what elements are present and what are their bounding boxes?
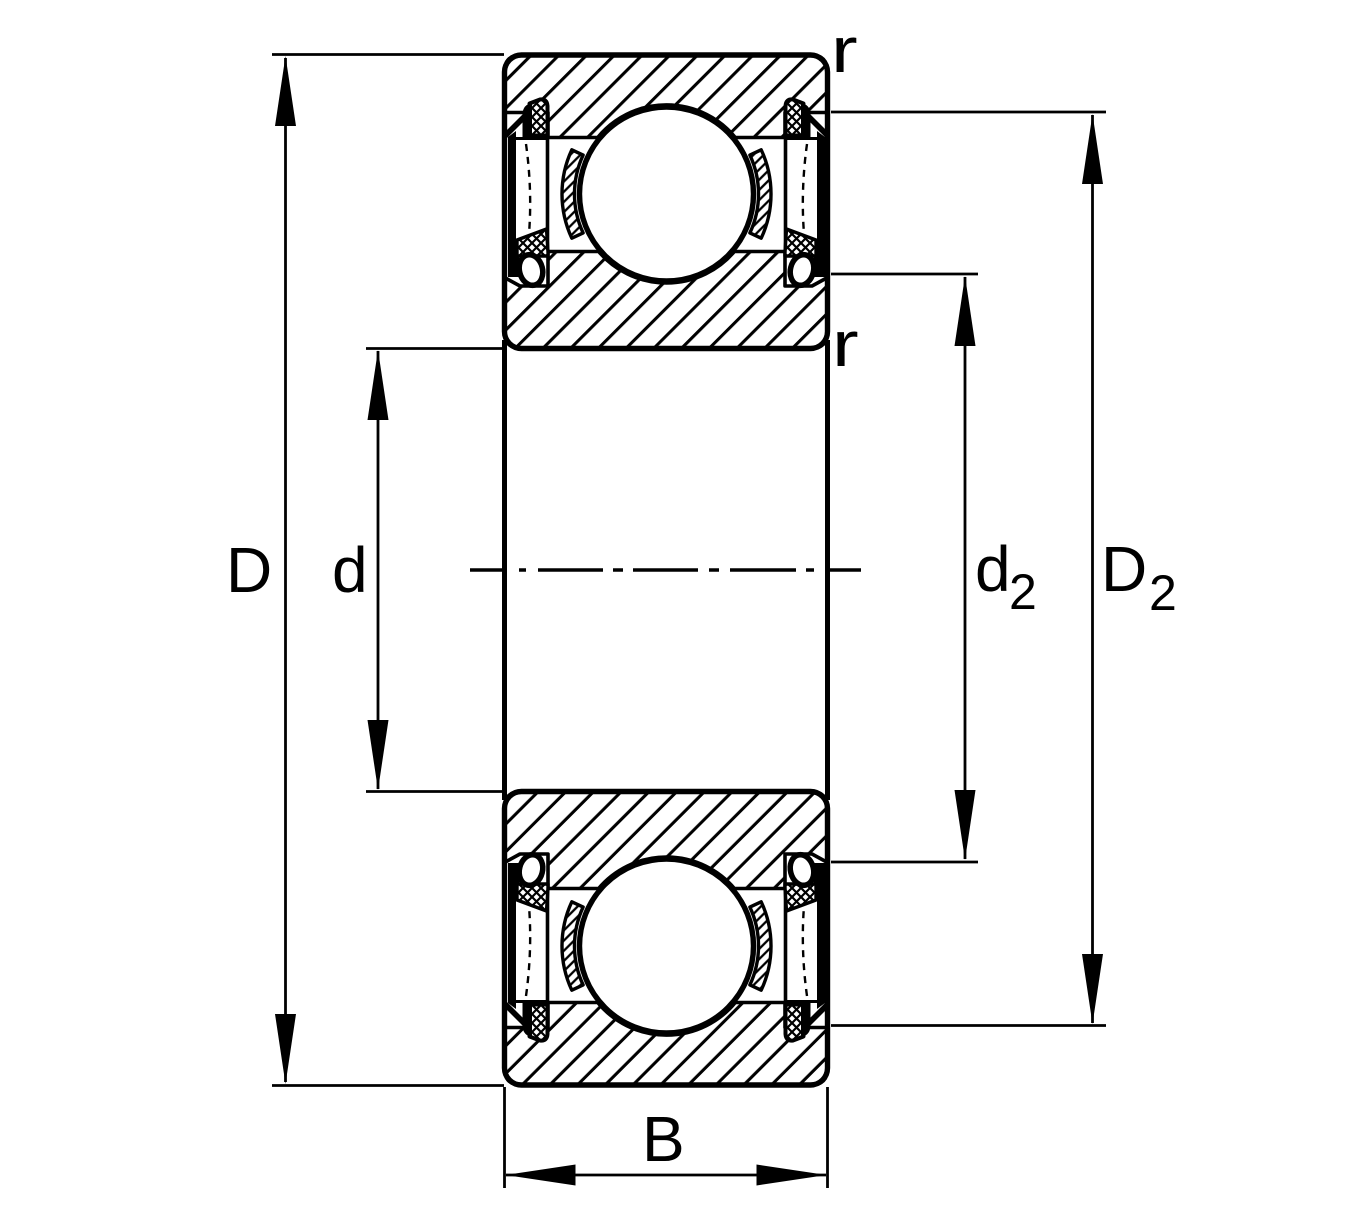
svg-text:2: 2	[1009, 564, 1037, 620]
svg-text:2: 2	[1149, 565, 1177, 621]
svg-text:B: B	[642, 1103, 685, 1175]
svg-text:D: D	[226, 534, 272, 606]
svg-text:d: d	[332, 534, 368, 606]
svg-text:r: r	[832, 309, 859, 381]
svg-text:d: d	[975, 533, 1011, 605]
svg-text:r: r	[831, 15, 858, 87]
svg-text:D: D	[1101, 533, 1147, 605]
